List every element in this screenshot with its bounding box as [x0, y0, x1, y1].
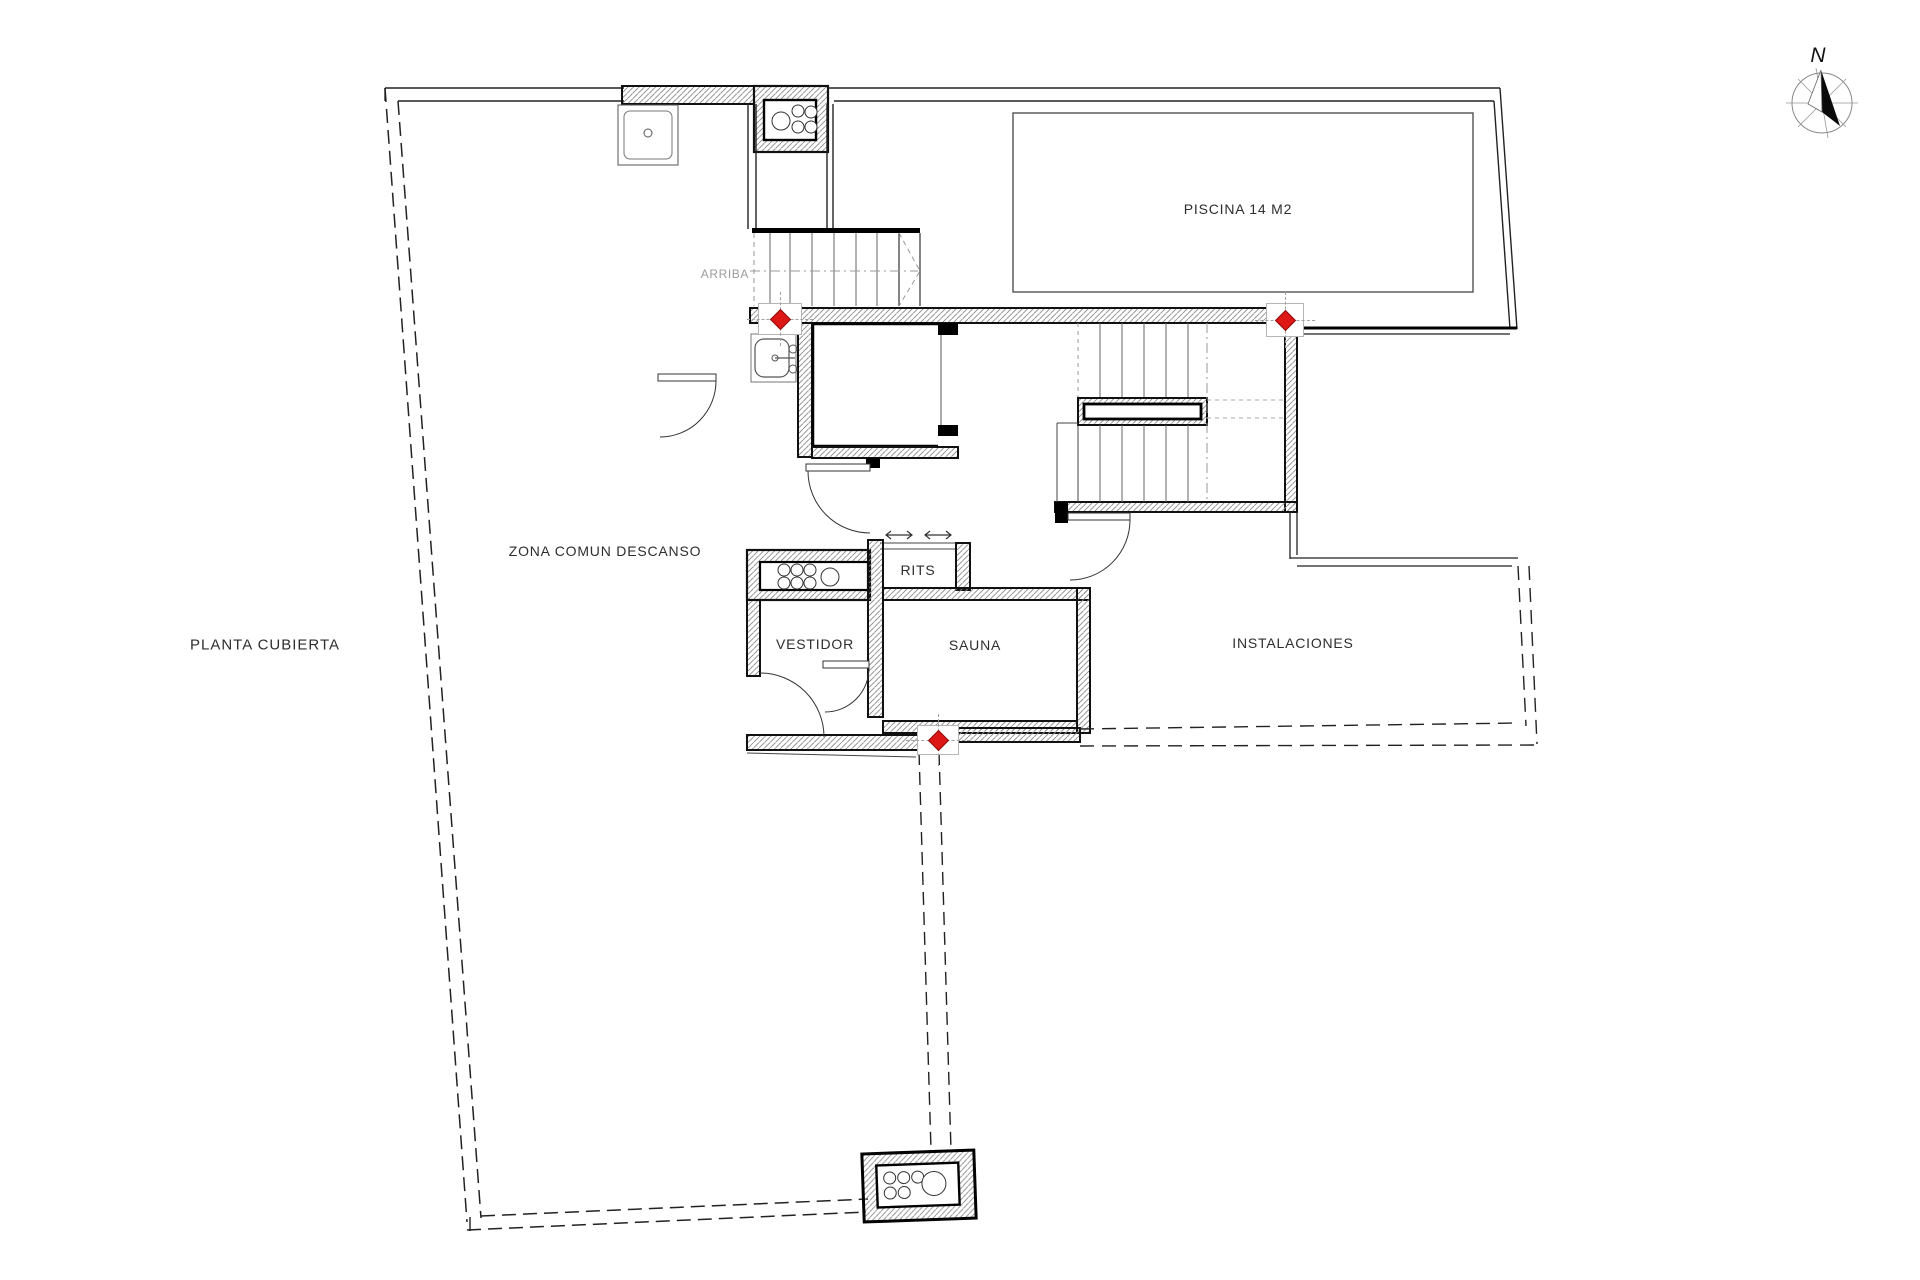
door-terrace-lower: [760, 673, 824, 737]
duct-shaft-bottom: [862, 1150, 976, 1222]
level-marker-corridor: [917, 725, 959, 755]
wall-top: [622, 86, 754, 104]
level-marker-icon: [927, 729, 948, 750]
elevator-room: [798, 323, 958, 468]
room-label-sauna: SAUNA: [949, 637, 1001, 653]
shower-tray: [618, 105, 678, 165]
room-label-vestidor: VESTIDOR: [776, 636, 854, 652]
floor-title: PLANTA CUBIERTA: [190, 637, 340, 654]
level-marker-icon: [1274, 309, 1295, 330]
stairs-main: [1055, 323, 1297, 523]
room-label-instalaciones: INSTALACIONES: [1232, 635, 1353, 651]
level-marker-stairs-main: [1266, 303, 1304, 337]
door-elevator-corridor: [806, 464, 870, 533]
level-marker-stairs-small: [758, 303, 802, 335]
door-vestidor: [823, 661, 869, 712]
sink: [751, 334, 797, 382]
stairs-upper-flight: [750, 228, 920, 306]
level-marker-icon: [769, 308, 790, 329]
instalaciones-boundary: [1080, 512, 1537, 746]
wall-main-band: [750, 308, 1270, 323]
compass-north-label: N: [1810, 44, 1825, 68]
duct-shaft-top: [754, 86, 828, 152]
pool-terrace-boundary: [748, 88, 1517, 334]
floor-plan-canvas: PLANTA CUBIERTA ZONA COMUN DESCANSO PISC…: [0, 0, 1920, 1280]
door-instalaciones: [1068, 513, 1130, 580]
rits-room: [880, 531, 970, 590]
service-corridor: [919, 752, 951, 1150]
stairs-direction-label: ARRIBA: [701, 267, 749, 281]
room-label-zona-comun: ZONA COMUN DESCANSO: [509, 543, 702, 559]
door-terrace-hall: [658, 374, 716, 437]
duct-shaft-mid: [747, 550, 870, 600]
room-label-piscina: PISCINA 14 M2: [1184, 201, 1292, 217]
north-compass-icon: [1786, 68, 1858, 138]
terrace-outline: [385, 88, 868, 1231]
room-label-rits: RITS: [900, 562, 935, 578]
